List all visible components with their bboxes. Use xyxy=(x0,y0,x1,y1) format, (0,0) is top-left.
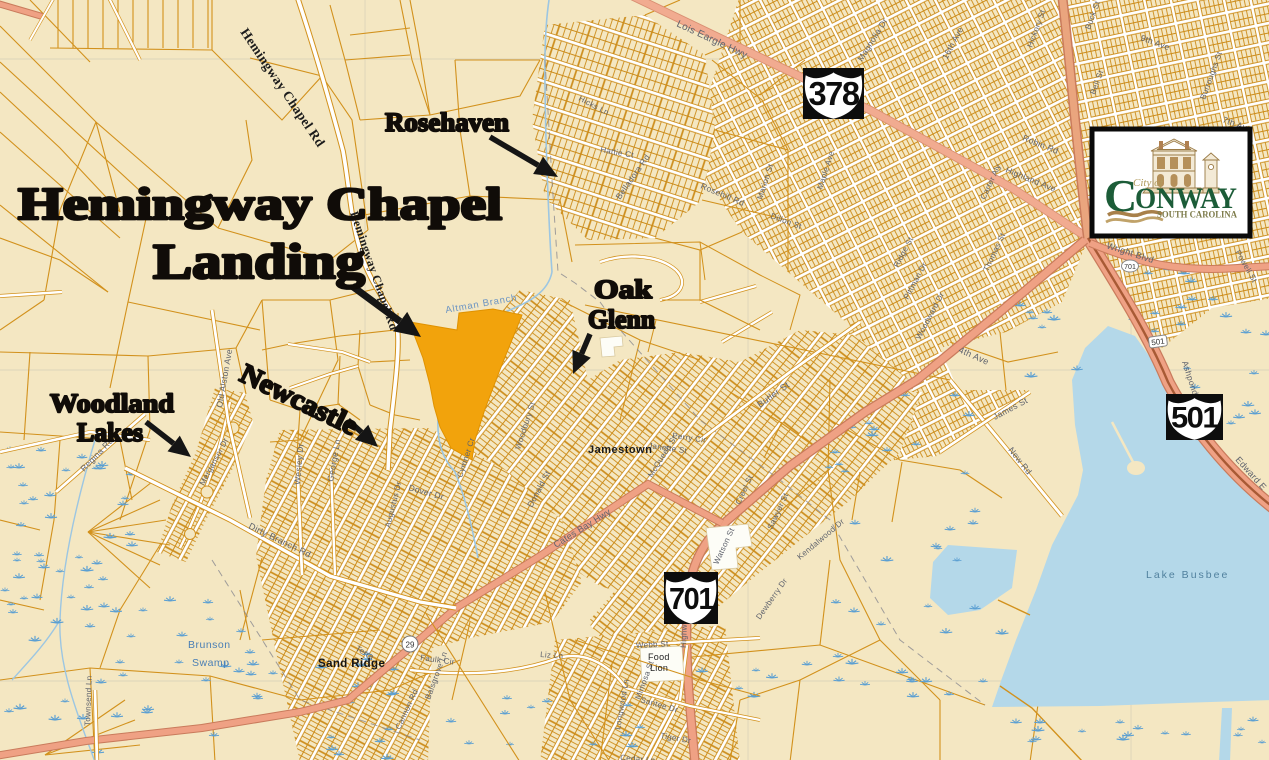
svg-text:Webb St: Webb St xyxy=(636,639,670,650)
svg-text:Hemingway Chapel: Hemingway Chapel xyxy=(18,178,502,229)
svg-text:Townsend Ln: Townsend Ln xyxy=(83,675,94,726)
svg-text:Lion: Lion xyxy=(650,663,668,673)
svg-text:Lake Busbee: Lake Busbee xyxy=(1146,569,1229,581)
svg-text:Sand Ridge: Sand Ridge xyxy=(318,658,385,670)
svg-text:Oak: Oak xyxy=(594,275,653,304)
svg-text:Brunson: Brunson xyxy=(188,639,231,651)
svg-text:Food: Food xyxy=(648,652,670,662)
svg-text:Rosehaven: Rosehaven xyxy=(385,108,510,137)
svg-text:501: 501 xyxy=(1151,337,1166,348)
svg-text:701: 701 xyxy=(1124,264,1136,271)
svg-text:Lakes: Lakes xyxy=(77,418,143,447)
svg-text:SOUTH CAROLINA: SOUTH CAROLINA xyxy=(1157,211,1237,221)
svg-text:Landing: Landing xyxy=(153,233,365,289)
svg-text:701: 701 xyxy=(669,581,714,616)
svg-text:Jamestown: Jamestown xyxy=(588,444,652,456)
svg-text:Swamp: Swamp xyxy=(192,657,230,669)
svg-text:Glenn: Glenn xyxy=(588,305,656,334)
svg-text:29: 29 xyxy=(406,641,415,650)
svg-text:Woodland: Woodland xyxy=(50,389,175,418)
svg-text:Liz Ln: Liz Ln xyxy=(540,650,564,661)
svg-text:378: 378 xyxy=(809,75,860,112)
svg-text:501: 501 xyxy=(1171,402,1219,435)
